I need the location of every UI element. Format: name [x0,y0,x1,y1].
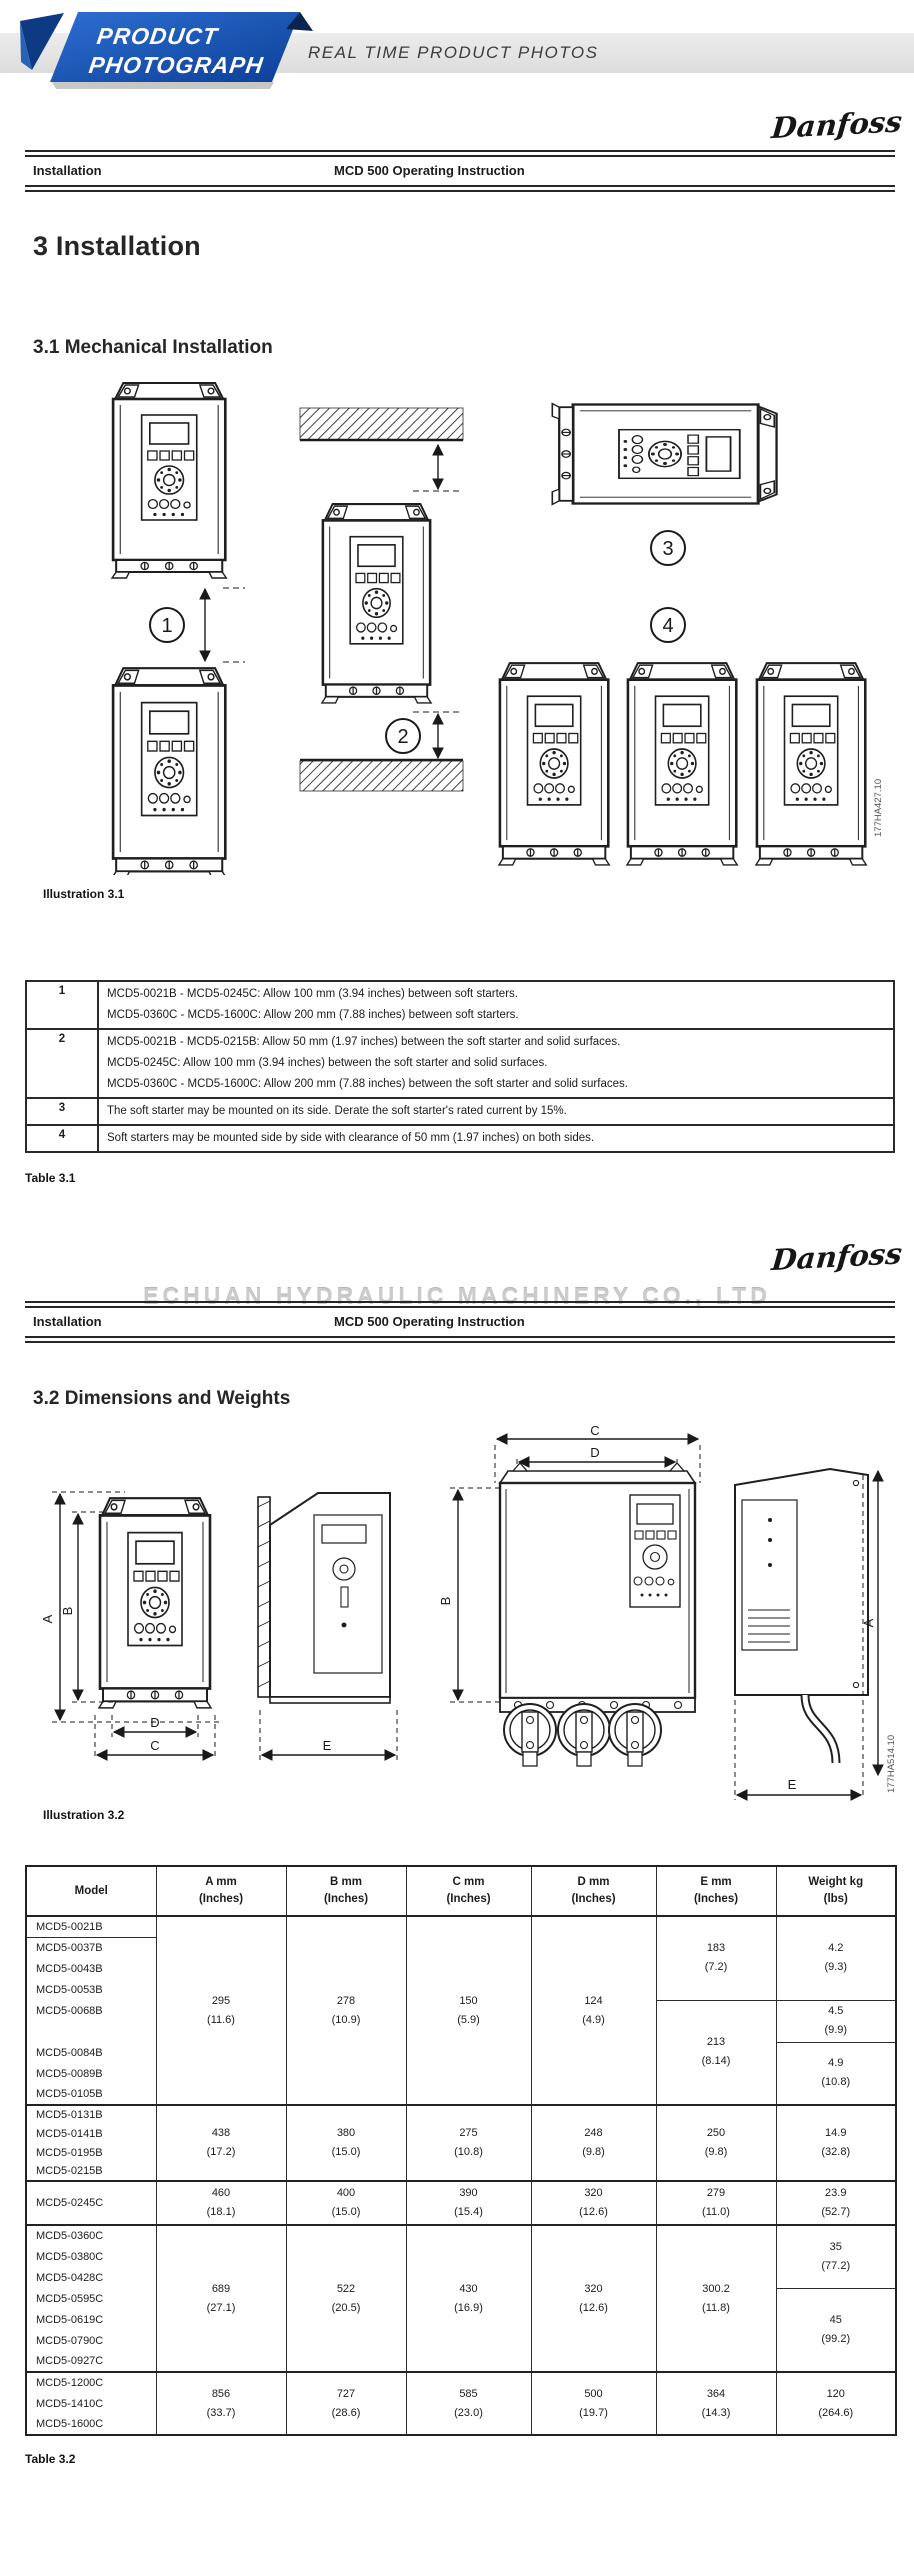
soft-starters-side-by-side [499,663,866,865]
cell-line: (10.8) [777,2073,896,2092]
dimensions-table-block: Model A mm(Inches) B mm(Inches) C mm(Inc… [25,1865,895,2466]
callout-4: 4 [651,608,685,642]
header-line: C mm [407,1874,531,1891]
dimensions-weights-table: Model A mm(Inches) B mm(Inches) C mm(Inc… [25,1865,897,2436]
header-line: (Inches) [287,1891,406,1908]
cell-line: (15.0) [287,2203,406,2222]
cell-line: (14.3) [657,2404,776,2423]
row-line: The soft starter may be mounted on its s… [107,1101,885,1122]
product-ribbon: PRODUCT PHOTOGRAPH [0,0,340,100]
cell-e: 279(11.0) [656,2181,776,2225]
cell-d: 500(19.7) [531,2372,656,2435]
cell-line: 35 [777,2238,896,2257]
cell-line: (19.7) [532,2404,656,2423]
model-cell: MCD5-1600C [26,2414,156,2435]
cell-weight: 4.9(10.8) [776,2042,896,2105]
illustration-3-1-caption: Illustration 3.1 [43,887,124,901]
drawing-code: 177HA514.10 [886,1735,897,1793]
cell-line: (264.6) [777,2404,896,2423]
row-text: MCD5-0021B - MCD5-0215B: Allow 50 mm (1.… [98,1029,894,1098]
soft-starter-front-top [112,383,226,578]
cell-line: 390 [407,2184,531,2203]
cell-c: 430(16.9) [406,2225,531,2372]
row-line: MCD5-0360C - MCD5-1600C: Allow 200 mm (7… [107,1074,885,1095]
svg-text:2: 2 [397,726,408,748]
dim-label-a: A [40,1614,55,1623]
cell-line: (9.8) [657,2143,776,2162]
model-cell: MCD5-0043B [26,1958,156,1979]
cell-line: 320 [532,2184,656,2203]
dim-label-c: C [150,1738,159,1753]
table-3-2-caption: Table 3.2 [25,2452,895,2466]
model-cell: MCD5-0360C [26,2225,156,2246]
model-cell: MCD5-0245C [26,2181,156,2225]
cell-line: 364 [657,2385,776,2404]
table-row: 2 MCD5-0021B - MCD5-0215B: Allow 50 mm (… [26,1029,894,1098]
cell-line: 295 [157,1992,286,2011]
cell-line: 275 [407,2124,531,2143]
cell-line: (20.5) [287,2299,406,2318]
cell-d: 124(4.9) [531,1916,656,2105]
header-rule-bottom [25,185,895,192]
cell-c: 390(15.4) [406,2181,531,2225]
cell-weight: 45(99.2) [776,2288,896,2372]
cell-line: 45 [777,2311,896,2330]
model-cell: MCD5-0021B [26,1916,156,1937]
header-line: (Inches) [657,1891,776,1908]
cell-e: 300.2(11.8) [656,2225,776,2372]
cell-line: (12.6) [532,2299,656,2318]
cell-line: (15.0) [287,2143,406,2162]
model-cell [26,2021,156,2042]
cell-line: (27.1) [157,2299,286,2318]
dim-label-b2: B [438,1597,453,1606]
cell-a: 856(33.7) [156,2372,286,2435]
clearance-table-block: 1 MCD5-0021B - MCD5-0245C: Allow 100 mm … [25,980,895,1185]
cell-e: 183(7.2) [656,1916,776,2000]
cell-line: (10.8) [407,2143,531,2162]
danfoss-logo: Danfoss [770,1237,894,1277]
header-line: D mm [532,1874,656,1891]
cell-line: 14.9 [777,2124,896,2143]
cell-line: 4.9 [777,2054,896,2073]
running-header-left: Installation [33,163,102,178]
header-line: A mm [157,1874,286,1891]
illustration-3-2: A B D C E C D [30,1425,910,1810]
cell-line: 248 [532,2124,656,2143]
cell-line: (28.6) [287,2404,406,2423]
callout-3: 3 [651,531,685,565]
spacing-dim-1 [205,588,245,662]
model-cell: MCD5-0068B [26,2000,156,2021]
table-row: 3 The soft starter may be mounted on its… [26,1098,894,1125]
cell-a: 689(27.1) [156,2225,286,2372]
cell-line: (4.9) [532,2011,656,2030]
row-line: MCD5-0360C - MCD5-1600C: Allow 200 mm (7… [107,1005,885,1026]
header-line: B mm [287,1874,406,1891]
callout-2: 2 [386,719,420,753]
header-line: (Inches) [157,1891,286,1908]
table-row: MCD5-0245C 460(18.1) 400(15.0) 390(15.4)… [26,2181,896,2225]
header-line: Model [27,1883,156,1900]
cell-line: (15.4) [407,2203,531,2222]
cell-line: 320 [532,2280,656,2299]
row-number: 4 [26,1125,98,1152]
cell-c: 585(23.0) [406,2372,531,2435]
cell-weight: 120(264.6) [776,2372,896,2435]
cell-b: 522(20.5) [286,2225,406,2372]
dim-label-b: B [60,1607,75,1616]
dim-label-c2: C [590,1425,599,1438]
cell-line: (12.6) [532,2203,656,2222]
cell-a: 295(11.6) [156,1916,286,2105]
large-unit-front-view [500,1463,695,1766]
cell-line: 150 [407,1992,531,2011]
cell-line: (8.14) [657,2052,776,2071]
dim-label-e: E [323,1738,332,1753]
model-cell: MCD5-0927C [26,2351,156,2372]
col-header-model: Model [26,1866,156,1916]
model-cell: MCD5-0428C [26,2267,156,2288]
model-cell: MCD5-0195B [26,2143,156,2162]
row-number: 3 [26,1098,98,1125]
cell-line: (9.9) [777,2021,896,2040]
col-header-e: E mm(Inches) [656,1866,776,1916]
model-cell: MCD5-1410C [26,2393,156,2414]
dim-label-d2: D [590,1445,599,1460]
cell-line: (23.0) [407,2404,531,2423]
dim-label-d: D [150,1715,159,1730]
ribbon-shadow [52,82,274,89]
callout-1: 1 [150,608,184,642]
row-number: 2 [26,1029,98,1098]
row-text: The soft starter may be mounted on its s… [98,1098,894,1125]
cell-line: 856 [157,2385,286,2404]
model-cell: MCD5-0084B [26,2042,156,2063]
cell-line: 120 [777,2385,896,2404]
table-row: MCD5-0021B 295(11.6) 278(10.9) 150(5.9) … [26,1916,896,1937]
model-cell: MCD5-0053B [26,1979,156,2000]
dim-label-a2: A [861,1618,876,1627]
cell-line: 380 [287,2124,406,2143]
cell-line: 279 [657,2184,776,2203]
cell-line: (11.8) [657,2299,776,2318]
cell-b: 278(10.9) [286,1916,406,2105]
clearance-arrow-top [413,445,461,491]
model-cell: MCD5-0380C [26,2246,156,2267]
model-cell: MCD5-0141B [26,2124,156,2143]
col-header-b: B mm(Inches) [286,1866,406,1916]
wall-top [300,408,463,440]
header-line: (Inches) [532,1891,656,1908]
row-line: Soft starters may be mounted side by sid… [107,1128,885,1149]
model-cell: MCD5-0131B [26,2105,156,2124]
header-rule-top [25,150,895,157]
subsection-title-32: 3.2 Dimensions and Weights [33,1388,290,1410]
table-row: 1 MCD5-0021B - MCD5-0245C: Allow 100 mm … [26,981,894,1029]
cell-a: 438(17.2) [156,2105,286,2181]
table-row: MCD5-0131B 438(17.2) 380(15.0) 275(10.8)… [26,2105,896,2124]
cell-line: 213 [657,2033,776,2052]
cell-line: 727 [287,2385,406,2404]
cell-b: 400(15.0) [286,2181,406,2225]
cell-weight: 35(77.2) [776,2225,896,2288]
cell-line: 278 [287,1992,406,2011]
large-unit-b-dim [450,1488,500,1702]
cell-line: (99.2) [777,2330,896,2349]
header-line: (lbs) [777,1891,896,1908]
col-header-d: D mm(Inches) [531,1866,656,1916]
header-row: Model A mm(Inches) B mm(Inches) C mm(Inc… [26,1866,896,1916]
row-text: MCD5-0021B - MCD5-0245C: Allow 100 mm (3… [98,981,894,1029]
cell-line: 4.2 [777,1939,896,1958]
cell-line: 23.9 [777,2184,896,2203]
row-number: 1 [26,981,98,1029]
cell-d: 248(9.8) [531,2105,656,2181]
header-rule-bottom [25,1336,895,1343]
cell-line: 300.2 [657,2280,776,2299]
cell-e: 213(8.14) [656,2000,776,2105]
cell-e: 250(9.8) [656,2105,776,2181]
table-3-1-caption: Table 3.1 [25,1171,895,1185]
running-header-center: MCD 500 Operating Instruction [334,1314,525,1329]
cell-line: (5.9) [407,2011,531,2030]
cell-line: 183 [657,1939,776,1958]
cell-line: 4.5 [777,2002,896,2021]
cell-line: 250 [657,2124,776,2143]
cell-line: 430 [407,2280,531,2299]
svg-text:3: 3 [662,538,673,560]
cell-line: (11.6) [157,2011,286,2030]
cell-line: (16.9) [407,2299,531,2318]
model-cell: MCD5-0790C [26,2330,156,2351]
svg-text:4: 4 [662,615,673,637]
cell-weight: 4.2(9.3) [776,1916,896,2000]
cell-line: (9.8) [532,2143,656,2162]
cell-line: (32.8) [777,2143,896,2162]
cell-weight: 14.9(32.8) [776,2105,896,2181]
col-header-weight: Weight kg(lbs) [776,1866,896,1916]
cell-d: 320(12.6) [531,2225,656,2372]
row-line: MCD5-0021B - MCD5-0245C: Allow 100 mm (3… [107,984,885,1005]
cable-rings [504,1704,661,1766]
header-rule-top [25,1301,895,1308]
cell-e: 364(14.3) [656,2372,776,2435]
header-line: E mm [657,1874,776,1891]
cell-b: 380(15.0) [286,2105,406,2181]
cell-line: (18.1) [157,2203,286,2222]
subsection-title-31: 3.1 Mechanical Installation [33,337,273,359]
cell-line: 400 [287,2184,406,2203]
header-line: (Inches) [407,1891,531,1908]
cell-line: 500 [532,2385,656,2404]
cell-line: (7.2) [657,1958,776,1977]
model-cell: MCD5-0089B [26,2063,156,2084]
cell-line: (10.9) [287,2011,406,2030]
running-header: Installation MCD 500 Operating Instructi… [25,1314,895,1334]
row-line: MCD5-0021B - MCD5-0215B: Allow 50 mm (1.… [107,1032,885,1053]
cell-c: 275(10.8) [406,2105,531,2181]
drawing-code: 177HA427.10 [873,779,884,837]
cell-line: (52.7) [777,2203,896,2222]
large-unit-side-view [735,1469,868,1763]
cell-line: 522 [287,2280,406,2299]
wall-bottom [300,760,463,791]
small-unit-side-view [258,1493,390,1703]
model-cell: MCD5-0105B [26,2084,156,2105]
clearance-table: 1 MCD5-0021B - MCD5-0245C: Allow 100 mm … [25,980,895,1153]
cell-line: 460 [157,2184,286,2203]
cell-line: 124 [532,1992,656,2011]
soft-starter-side-mounted [552,404,776,505]
cell-line: (17.2) [157,2143,286,2162]
cell-line: (9.3) [777,1958,896,1977]
model-cell: MCD5-0619C [26,2309,156,2330]
soft-starter-front-middle [322,504,431,703]
col-header-c: C mm(Inches) [406,1866,531,1916]
model-cell: MCD5-0595C [26,2288,156,2309]
cell-line: 689 [157,2280,286,2299]
cell-line: (33.7) [157,2404,286,2423]
cell-line: 438 [157,2124,286,2143]
cell-line: (77.2) [777,2257,896,2276]
row-text: Soft starters may be mounted side by sid… [98,1125,894,1152]
cell-b: 727(28.6) [286,2372,406,2435]
illustration-3-1: 1 2 3 4 177HA427.10 [55,375,905,875]
table-row: 4 Soft starters may be mounted side by s… [26,1125,894,1152]
cell-a: 460(18.1) [156,2181,286,2225]
cell-weight: 4.5(9.9) [776,2000,896,2042]
small-unit-front-view [99,1498,211,1708]
soft-starter-front-bottom [112,668,226,875]
running-header-center: MCD 500 Operating Instruction [334,163,525,178]
section-title: 3 Installation [33,231,201,262]
dim-label-e2: E [788,1777,797,1792]
row-line: MCD5-0245C: Allow 100 mm (3.94 inches) b… [107,1053,885,1074]
ribbon-text-line1: PRODUCT [95,23,220,49]
table-row: MCD5-1200C 856(33.7) 727(28.6) 585(23.0)… [26,2372,896,2393]
model-cell: MCD5-0215B [26,2162,156,2181]
svg-text:1: 1 [161,615,172,637]
illustration-3-2-caption: Illustration 3.2 [43,1808,124,1822]
cell-c: 150(5.9) [406,1916,531,2105]
cell-d: 320(12.6) [531,2181,656,2225]
header-line: Weight kg [777,1874,896,1891]
model-cell: MCD5-1200C [26,2372,156,2393]
table-row: MCD5-0360C 689(27.1) 522(20.5) 430(16.9)… [26,2225,896,2246]
ribbon-text-line2: PHOTOGRAPH [87,52,265,78]
running-header: Installation MCD 500 Operating Instructi… [25,163,895,183]
col-header-a: A mm(Inches) [156,1866,286,1916]
model-cell: MCD5-0037B [26,1937,156,1958]
cell-weight: 23.9(52.7) [776,2181,896,2225]
cell-line: (11.0) [657,2203,776,2222]
running-header-left: Installation [33,1314,102,1329]
danfoss-logo: Danfoss [770,105,894,145]
cell-line: 585 [407,2385,531,2404]
